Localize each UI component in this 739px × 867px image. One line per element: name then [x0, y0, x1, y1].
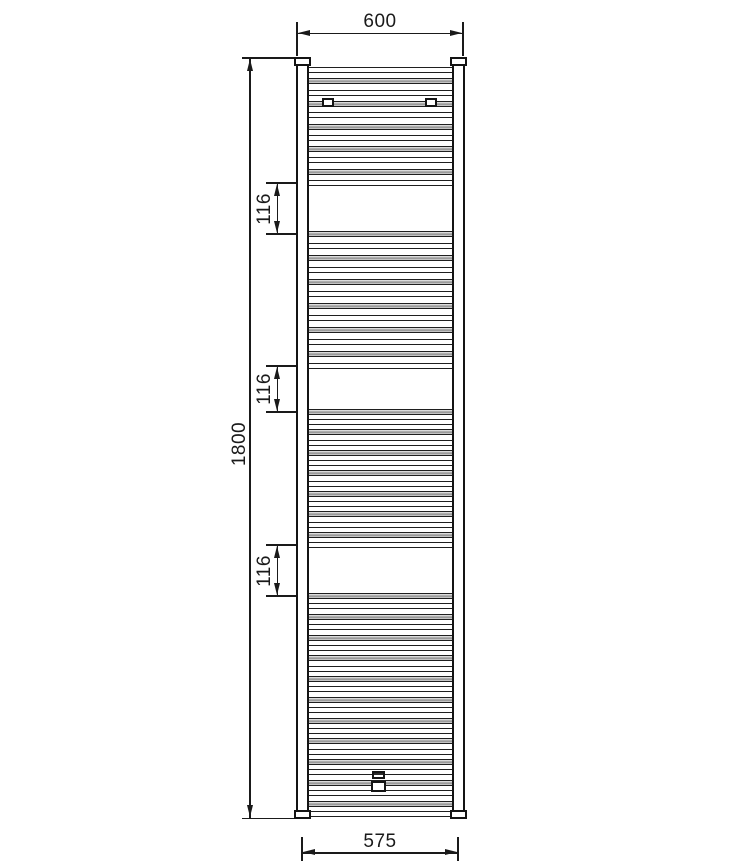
radiator-rung	[306, 801, 455, 807]
radiator-rung	[306, 707, 455, 713]
dim-arrow-down	[247, 805, 253, 817]
right-collector-top-cap	[450, 57, 467, 66]
extension-line	[296, 22, 298, 56]
radiator-rung	[306, 180, 455, 186]
dimension-label-hook-gap-2: 116	[254, 359, 276, 419]
radiator-rung	[306, 666, 455, 672]
dimension-line	[302, 852, 458, 854]
radiator-rung	[306, 593, 455, 599]
radiator-rung	[306, 501, 455, 507]
radiator-rung	[306, 460, 455, 466]
dim-arrow-up	[247, 59, 253, 71]
radiator-rung	[306, 481, 455, 487]
dim-arrow-down	[274, 221, 280, 233]
air-vent-connection	[372, 771, 385, 779]
radiator-rung	[306, 728, 455, 734]
radiator-technical-drawing: 600 1800 116 116 116	[0, 0, 739, 867]
dim-arrow-left	[298, 30, 310, 36]
dim-arrow-down	[274, 399, 280, 411]
radiator-rung	[306, 291, 455, 297]
radiator-rung	[306, 491, 455, 497]
dim-arrow-down	[274, 583, 280, 595]
radiator-rung	[306, 738, 455, 744]
extension-line	[242, 818, 296, 820]
wall-bracket-right	[425, 98, 437, 107]
radiator-rung	[306, 635, 455, 641]
radiator-rung	[306, 351, 455, 357]
wall-bracket-left	[322, 98, 334, 107]
radiator-rung	[306, 603, 455, 609]
radiator-rung	[306, 532, 455, 538]
radiator-rung	[306, 542, 455, 548]
radiator-rung	[306, 146, 455, 152]
radiator-rung	[306, 243, 455, 249]
radiator-rung	[306, 124, 455, 130]
radiator-rung	[306, 645, 455, 651]
radiator-right-collector	[452, 58, 465, 818]
radiator-rung	[306, 522, 455, 528]
extension-line	[266, 182, 300, 184]
radiator-rung	[306, 112, 455, 118]
radiator-rung	[306, 231, 455, 237]
radiator-left-collector	[296, 58, 309, 818]
right-collector-bottom-cap	[450, 810, 467, 819]
radiator-rung	[306, 450, 455, 456]
radiator-rung	[306, 409, 455, 415]
left-collector-top-cap	[294, 57, 311, 66]
dim-arrow-right	[445, 849, 457, 855]
radiator-rung	[306, 255, 455, 261]
radiator-rung	[306, 363, 455, 369]
extension-line	[457, 837, 459, 861]
radiator-rung	[306, 90, 455, 96]
left-collector-bottom-cap	[294, 810, 311, 819]
radiator-rung	[306, 470, 455, 476]
radiator-rung	[306, 440, 455, 446]
radiator-rung	[306, 339, 455, 345]
radiator-rung	[306, 614, 455, 620]
radiator-rung	[306, 67, 455, 73]
radiator-rung	[306, 135, 455, 141]
extension-line	[266, 595, 300, 597]
dimension-label-hook-gap-1: 116	[254, 179, 276, 239]
extension-line	[266, 544, 300, 546]
radiator-rung	[306, 718, 455, 724]
radiator-rung	[306, 697, 455, 703]
radiator-rung	[306, 327, 455, 333]
dim-arrow-up	[274, 184, 280, 196]
radiator-rung	[306, 759, 455, 765]
radiator-rung	[306, 157, 455, 163]
dimension-label-overall-height: 1800	[229, 399, 251, 489]
radiator-rung	[306, 749, 455, 755]
dim-arrow-right	[450, 30, 462, 36]
radiator-rung	[306, 315, 455, 321]
extension-line	[266, 365, 300, 367]
dimension-label-top-width: 600	[297, 11, 463, 33]
radiator-rung	[306, 267, 455, 273]
radiator-rung	[306, 419, 455, 425]
radiator-rung	[306, 811, 455, 817]
radiator-rung	[306, 279, 455, 285]
radiator-rung	[306, 78, 455, 84]
radiator-rung	[306, 624, 455, 630]
radiator-rung	[306, 303, 455, 309]
dim-arrow-up	[274, 367, 280, 379]
radiator-rung	[306, 686, 455, 692]
dimension-label-bottom-pipe-centres: 575	[302, 831, 458, 853]
dim-arrow-up	[274, 546, 280, 558]
dimension-line	[249, 58, 251, 818]
dim-arrow-left	[303, 849, 315, 855]
extension-line	[266, 233, 300, 235]
extension-line	[266, 411, 300, 413]
dimension-label-hook-gap-3: 116	[254, 541, 276, 601]
radiator-rung	[306, 676, 455, 682]
extension-line	[462, 22, 464, 56]
valve-connection	[371, 781, 386, 792]
radiator-rung	[306, 429, 455, 435]
radiator-rung	[306, 169, 455, 175]
dimension-line	[297, 33, 463, 35]
radiator-rung	[306, 511, 455, 517]
radiator-rung	[306, 655, 455, 661]
